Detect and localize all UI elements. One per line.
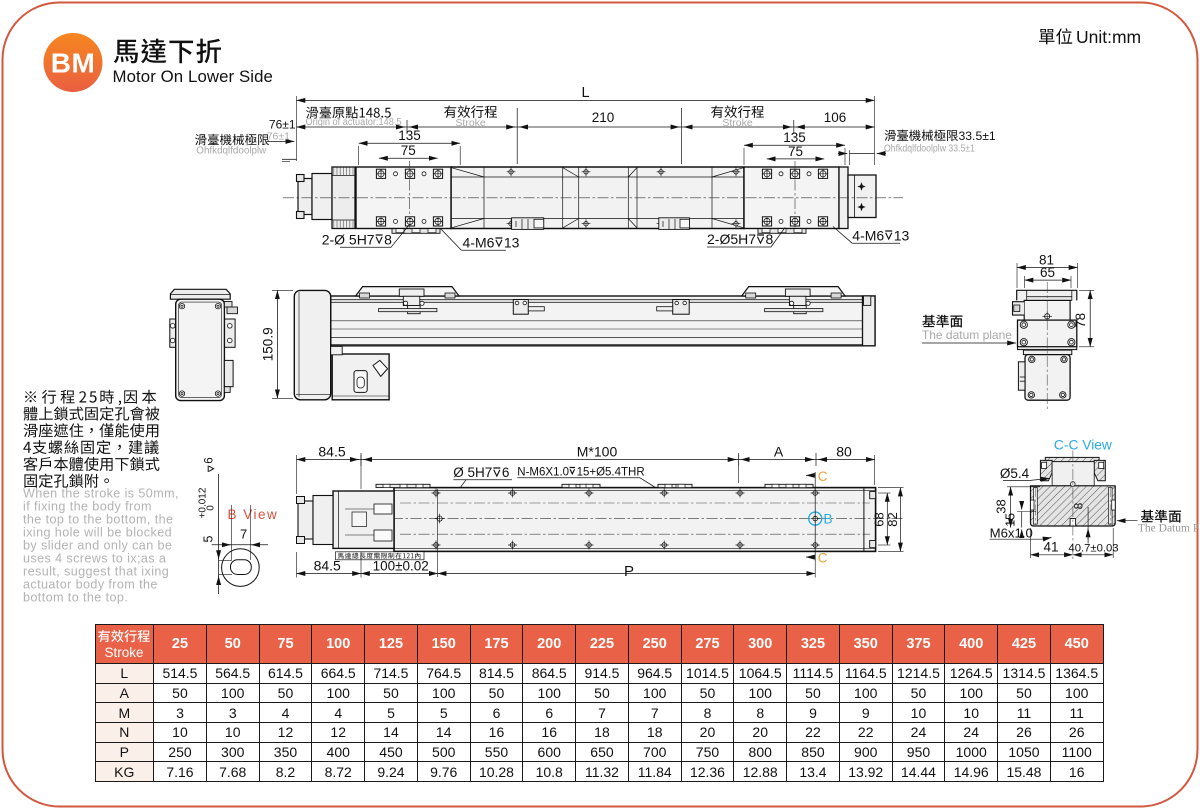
svg-text:65: 65 <box>1040 265 1055 280</box>
svg-text:Ø 5H7: Ø 5H7 <box>453 465 492 480</box>
svg-text:M*100: M*100 <box>577 444 618 460</box>
svg-text:The datum plane: The datum plane <box>922 328 1012 342</box>
svg-text:A: A <box>774 444 784 460</box>
svg-text:P: P <box>624 563 634 580</box>
svg-text:+0.012: +0.012 <box>198 487 209 518</box>
svg-text:B View: B View <box>228 507 279 522</box>
svg-text:C: C <box>818 469 828 484</box>
svg-text:B: B <box>824 512 833 527</box>
svg-text:13: 13 <box>504 235 520 251</box>
svg-text:76±1: 76±1 <box>269 118 296 132</box>
svg-text:8: 8 <box>1071 502 1085 509</box>
svg-text:7: 7 <box>240 527 247 542</box>
svg-text:by slider and only can be: by slider and only can be <box>23 539 172 553</box>
svg-text:210: 210 <box>592 110 615 125</box>
svg-text:100±0.02: 100±0.02 <box>373 559 429 574</box>
svg-text:0: 0 <box>206 505 217 511</box>
svg-text:C-C View: C-C View <box>1054 438 1112 453</box>
svg-text:BM: BM <box>51 48 96 79</box>
svg-text:135: 135 <box>398 128 421 143</box>
svg-text:Stroke: Stroke <box>722 117 753 129</box>
svg-text:The Datum Plane: The Datum Plane <box>1138 522 1200 534</box>
svg-text:8: 8 <box>384 232 392 248</box>
svg-text:uses 4 screws to ix;as a: uses 4 screws to ix;as a <box>23 552 166 566</box>
svg-text:N-M6X1.0: N-M6X1.0 <box>517 467 569 479</box>
svg-text:Unit:mm: Unit:mm <box>1076 27 1141 47</box>
svg-text:the top to the bottom, the: the top to the bottom, the <box>23 513 173 527</box>
svg-text:38: 38 <box>993 499 1008 513</box>
svg-text:Stroke: Stroke <box>455 117 486 129</box>
svg-text:actuator body from the: actuator body from the <box>23 578 158 592</box>
svg-text:Origin of actuator:148.5: Origin of actuator:148.5 <box>306 116 402 128</box>
svg-text:80: 80 <box>836 444 852 460</box>
svg-text:Ohfkdqlfdoolplw 33.5±1: Ohfkdqlfdoolplw 33.5±1 <box>884 143 975 155</box>
svg-text:5: 5 <box>202 535 216 542</box>
svg-text:4-M6: 4-M6 <box>852 228 884 244</box>
svg-text:2-Ø5H7: 2-Ø5H7 <box>707 231 756 247</box>
svg-text:41: 41 <box>1043 540 1058 555</box>
svg-text:M6x1.0: M6x1.0 <box>990 525 1033 540</box>
svg-text:Motor On Lower Side: Motor On Lower Side <box>113 67 273 86</box>
svg-text:bottom to the top.: bottom to the top. <box>23 591 128 605</box>
svg-text:6: 6 <box>502 465 510 480</box>
svg-text:15+Ø5.4THR: 15+Ø5.4THR <box>577 467 645 479</box>
svg-text:result, suggest that ixing: result, suggest that ixing <box>23 565 169 579</box>
svg-text:76±1: 76±1 <box>267 131 290 143</box>
svg-text:84.5: 84.5 <box>314 558 341 574</box>
svg-text:82: 82 <box>885 512 900 526</box>
svg-text:2-Ø 5H7: 2-Ø 5H7 <box>322 232 375 248</box>
svg-text:13: 13 <box>894 228 910 244</box>
svg-text:When the stroke is 50mm,: When the stroke is 50mm, <box>23 487 179 501</box>
svg-text:40.7±0.03: 40.7±0.03 <box>1068 543 1118 555</box>
svg-text:84.5: 84.5 <box>318 444 345 460</box>
svg-text:L: L <box>581 85 589 101</box>
svg-text:75: 75 <box>401 143 416 158</box>
svg-text:33.5±1: 33.5±1 <box>959 129 996 143</box>
svg-text:Ø5.4: Ø5.4 <box>1000 466 1030 481</box>
svg-text:6: 6 <box>204 457 216 463</box>
svg-text:if fixing the body from: if fixing the body from <box>23 500 152 514</box>
svg-text:106: 106 <box>824 110 847 125</box>
svg-text:4-M6: 4-M6 <box>463 235 495 251</box>
svg-text:ixing hole will be blocked: ixing hole will be blocked <box>23 526 172 540</box>
svg-text:78: 78 <box>1073 313 1088 328</box>
svg-text:Ohfkdqlfdoolplw: Ohfkdqlfdoolplw <box>196 145 266 157</box>
svg-text:C: C <box>818 551 828 566</box>
svg-text:75: 75 <box>788 144 803 159</box>
svg-text:Stroke: Stroke <box>105 645 144 660</box>
svg-text:150.9: 150.9 <box>261 327 276 361</box>
